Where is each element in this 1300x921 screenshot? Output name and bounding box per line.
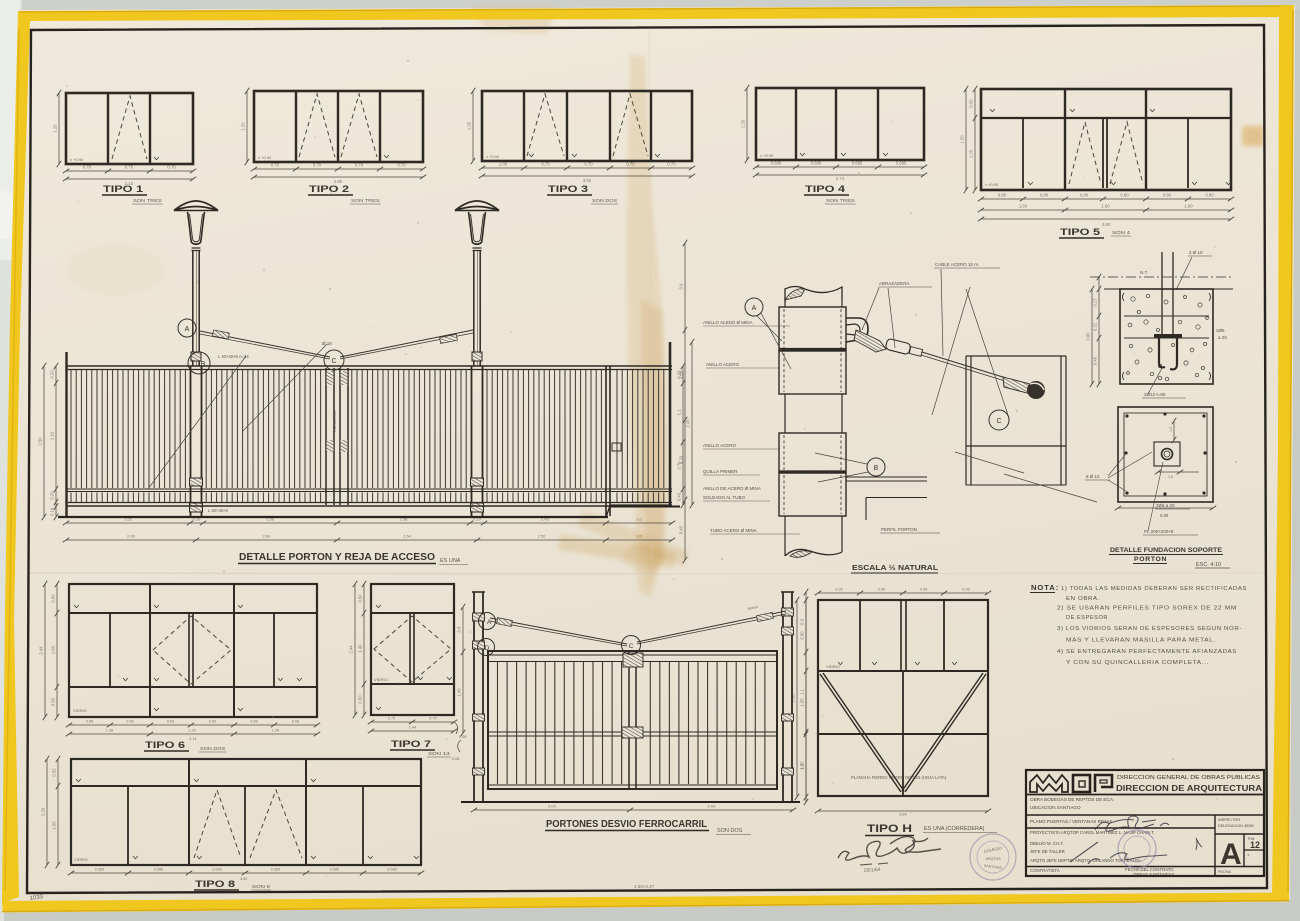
svg-text:A: A <box>752 305 757 312</box>
svg-text:2.60: 2.60 <box>127 534 136 539</box>
svg-text:0.20: 0.20 <box>50 491 55 500</box>
svg-text:C: C <box>629 643 634 650</box>
svg-text:0.70: 0.70 <box>679 455 684 464</box>
svg-text:0.69: 0.69 <box>209 720 216 724</box>
svg-text:N.T.: N.T. <box>1140 270 1148 275</box>
svg-text:0.80: 0.80 <box>1080 193 1089 198</box>
svg-text:a 20: a 20 <box>1218 335 1227 340</box>
svg-text:1.60: 1.60 <box>1184 204 1193 209</box>
svg-text:1.20: 1.20 <box>53 124 58 133</box>
svg-text:1.38: 1.38 <box>106 729 113 733</box>
svg-text:0.95: 0.95 <box>878 588 885 592</box>
svg-text:0.20: 0.20 <box>50 370 55 379</box>
svg-text:0.80: 0.80 <box>1120 193 1129 198</box>
svg-text:DETALLE FUNDACION SOPORTE: DETALLE FUNDACION SOPORTE <box>1110 547 1222 554</box>
svg-text:TIPO 6: TIPO 6 <box>145 740 185 751</box>
svg-text:0.80: 0.80 <box>1086 332 1091 341</box>
svg-text:ANILLO ACERO: ANILLO ACERO <box>703 443 737 448</box>
svg-text:SON DOS: SON DOS <box>717 828 743 834</box>
svg-text:0.55: 0.55 <box>52 768 57 777</box>
svg-text:TIPO 7: TIPO 7 <box>391 739 431 750</box>
svg-text:PORTON: PORTON <box>1134 556 1167 563</box>
svg-text:2.00: 2.00 <box>679 370 684 379</box>
svg-text:DELEGACION 45/58: DELEGACION 45/58 <box>1218 824 1253 828</box>
svg-text:VIDRIO: VIDRIO <box>374 677 388 682</box>
svg-text:0.69: 0.69 <box>167 720 174 724</box>
svg-text:20/1/64: 20/1/64 <box>864 867 881 874</box>
svg-text:1.38: 1.38 <box>272 729 279 733</box>
svg-text:JEFE DE TALLER: JEFE DE TALLER <box>1030 849 1065 854</box>
svg-text:1.20: 1.20 <box>741 119 746 128</box>
svg-text:PORTONES DESVIO FERROCARRIL: PORTONES DESVIO FERROCARRIL <box>546 819 707 830</box>
svg-text:TIPO 1: TIPO 1 <box>103 184 144 195</box>
svg-text:0.22: 0.22 <box>1093 322 1098 331</box>
svg-text:2.74: 2.74 <box>836 176 845 181</box>
svg-text:0.685: 0.685 <box>852 161 863 166</box>
svg-text:C: C <box>996 418 1001 425</box>
svg-text:2.58: 2.58 <box>266 517 275 522</box>
svg-text:SON TRES: SON TRES <box>351 198 380 204</box>
svg-text:0.30: 0.30 <box>969 99 974 108</box>
svg-text:0.70: 0.70 <box>541 162 550 167</box>
svg-text:2.04: 2.04 <box>548 804 557 809</box>
svg-text:2) SE USARAN PERFILES TIPO: 2) SE USARAN PERFILES TIPO SOREX DE 22 M… <box>1057 606 1237 612</box>
svg-text:2.64: 2.64 <box>403 534 412 539</box>
svg-text:L 40×40×6: L 40×40×6 <box>208 508 229 513</box>
svg-text:3.80: 3.80 <box>899 812 908 817</box>
svg-text:2.44: 2.44 <box>39 646 44 655</box>
svg-text:2Ø12 ℓ=90: 2Ø12 ℓ=90 <box>1144 392 1166 397</box>
svg-text:A: A <box>1220 838 1242 871</box>
svg-text:CONTRATISTA: CONTRATISTA <box>1030 868 1060 873</box>
svg-text:0.70: 0.70 <box>429 717 436 721</box>
svg-text:1.10: 1.10 <box>50 431 55 440</box>
svg-text:1.0: 1.0 <box>636 517 642 522</box>
svg-text:0.70: 0.70 <box>388 717 395 721</box>
svg-text:D: D <box>485 645 490 652</box>
svg-text:v +0.90: v +0.90 <box>985 182 999 187</box>
svg-text:0.70: 0.70 <box>667 162 676 167</box>
svg-text:0.70: 0.70 <box>397 163 406 168</box>
svg-text:TIPO 3: TIPO 3 <box>548 184 588 195</box>
svg-text:3.50: 3.50 <box>791 694 796 703</box>
svg-text:1.60: 1.60 <box>1101 204 1110 209</box>
svg-text:v +0.90: v +0.90 <box>760 153 774 158</box>
svg-text:DETALLE PORTON Y REJA DE ACCES: DETALLE PORTON Y REJA DE ACCESO <box>239 552 435 563</box>
svg-text:B: B <box>874 465 879 472</box>
svg-text:1.05: 1.05 <box>499 162 508 167</box>
svg-text:ANILLO ACERO: ANILLO ACERO <box>706 362 740 367</box>
svg-text:1.1: 1.1 <box>800 688 805 694</box>
svg-text:PLANO PUERTAS / VENTANAS REJ: PLANO PUERTAS / VENTANAS REJAS <box>1030 819 1112 824</box>
svg-text:0.08: 0.08 <box>452 757 459 761</box>
svg-text:0.68: 0.68 <box>292 720 299 724</box>
svg-text:3.50: 3.50 <box>240 877 247 881</box>
svg-text:0.585: 0.585 <box>95 868 105 872</box>
svg-text:SON DOS: SON DOS <box>592 198 617 204</box>
svg-text:0.50: 0.50 <box>51 697 56 706</box>
svg-text:ES UNA: ES UNA <box>440 558 461 564</box>
svg-text:3) LOS VIDRIOS SERAN DE ESPE: 3) LOS VIDRIOS SERAN DE ESPESORES SEGUN … <box>1057 626 1242 632</box>
svg-text:0.95: 0.95 <box>962 588 969 592</box>
svg-text:ABRAZADERA: ABRAZADERA <box>879 281 910 286</box>
svg-text:ES UNA (CORREDERA): ES UNA (CORREDERA) <box>924 826 985 832</box>
svg-text:0.70: 0.70 <box>584 162 593 167</box>
svg-text:2.58: 2.58 <box>400 517 409 522</box>
svg-text:B: B <box>201 361 206 368</box>
svg-text:1.0: 1.0 <box>1169 427 1173 432</box>
svg-text:0.60: 0.60 <box>358 594 363 603</box>
svg-text:Ø 18: Ø 18 <box>322 341 332 346</box>
svg-text:2.45: 2.45 <box>541 517 550 522</box>
svg-text:1.0: 1.0 <box>1168 475 1173 479</box>
svg-text:PLANCHA FIERRO NEGRO DE 3/16 (: PLANCHA FIERRO NEGRO DE 3/16 (HOJA LATA) <box>851 775 947 780</box>
svg-text:1.44: 1.44 <box>409 726 416 730</box>
svg-text:0.70: 0.70 <box>626 162 635 167</box>
svg-text:12: 12 <box>1250 840 1260 850</box>
svg-text:0.80: 0.80 <box>1160 513 1169 518</box>
svg-text:MAS Y LLEVARAN MASILLA PAR: MAS Y LLEVARAN MASILLA PARA METAL. <box>1066 638 1216 644</box>
svg-text:TIPO 4: TIPO 4 <box>805 184 846 195</box>
svg-text:0.685: 0.685 <box>896 161 907 166</box>
svg-text:8 Ø 10: 8 Ø 10 <box>1086 474 1100 479</box>
svg-text:A: A <box>487 619 492 626</box>
svg-text:0.80: 0.80 <box>998 193 1007 198</box>
svg-text:VIDRIO: VIDRIO <box>73 708 87 713</box>
svg-text:2.44: 2.44 <box>349 645 354 654</box>
svg-text:1.60: 1.60 <box>1019 204 1028 209</box>
svg-text:2.45: 2.45 <box>686 419 691 428</box>
svg-text:0.685: 0.685 <box>811 161 822 166</box>
svg-text:2.50: 2.50 <box>538 534 547 539</box>
svg-text:0.50: 0.50 <box>358 695 363 704</box>
svg-text:1.65: 1.65 <box>52 821 57 830</box>
svg-text:1.39: 1.39 <box>188 729 195 733</box>
svg-text:1.50: 1.50 <box>960 135 965 144</box>
svg-text:0.585: 0.585 <box>271 868 281 872</box>
svg-text:ARQTO JEFE DEPTO. ARQTO. ORL: ARQTO JEFE DEPTO. ARQTO. ORLANDO TORREAL… <box>1030 858 1141 863</box>
svg-text:1.45: 1.45 <box>457 688 462 697</box>
svg-text:2 Ø 10: 2 Ø 10 <box>1189 250 1203 255</box>
svg-text:DIBUJO M. CH.T.: DIBUJO M. CH.T. <box>1030 841 1064 846</box>
svg-text:0.40: 0.40 <box>677 492 682 501</box>
svg-text:4) SE ENTREGARAN PERFECTAME: 4) SE ENTREGARAN PERFECTAMENTE AFIANZADA… <box>1057 649 1237 655</box>
svg-text:0.80: 0.80 <box>1163 193 1172 198</box>
svg-text:0.68: 0.68 <box>86 720 93 724</box>
svg-text:ARQTOS: ARQTOS <box>985 857 1001 861</box>
svg-text:TIPO H: TIPO H <box>867 823 912 835</box>
svg-text:2.55: 2.55 <box>124 517 133 522</box>
svg-text:SON 6: SON 6 <box>252 884 270 890</box>
svg-text:SOLDADO AL TUBO: SOLDADO AL TUBO <box>703 495 746 500</box>
svg-text:1.0: 1.0 <box>636 534 642 539</box>
svg-text:1.20: 1.20 <box>969 149 974 158</box>
svg-text:0.95: 0.95 <box>920 588 927 592</box>
svg-text:DIRECCION GENERAL DE OBRAS PUB: DIRECCION GENERAL DE OBRAS PUBLICAS <box>1117 775 1261 781</box>
svg-text:0.70: 0.70 <box>83 165 92 170</box>
svg-text:0.68: 0.68 <box>126 720 133 724</box>
svg-text:4 BISAGRAS: 4 BISAGRAS <box>333 410 337 432</box>
svg-text:SON 13: SON 13 <box>428 751 450 757</box>
svg-text:0.08: 0.08 <box>459 735 466 739</box>
svg-text:OBRA BODEGAS DE REPTOS DE: OBRA BODEGAS DE REPTOS DE ECA. <box>1030 797 1114 802</box>
svg-text:ANILLO DE ACERO Ø MINA: ANILLO DE ACERO Ø MINA <box>703 486 761 491</box>
svg-text:3.05: 3.05 <box>583 178 592 183</box>
svg-text:EN OBRA.: EN OBRA. <box>1066 596 1100 602</box>
svg-text:2Ø6 a 20: 2Ø6 a 20 <box>1156 503 1175 508</box>
svg-text:0.585: 0.585 <box>212 868 222 872</box>
svg-text:TIPO 5: TIPO 5 <box>1060 227 1101 238</box>
svg-text:0.80: 0.80 <box>800 631 805 640</box>
svg-text:1.20: 1.20 <box>467 121 472 130</box>
svg-text:TIPO 2: TIPO 2 <box>309 184 349 195</box>
svg-text:A: A <box>185 326 190 333</box>
svg-text:ESC. 4:10: ESC. 4:10 <box>1196 562 1221 568</box>
svg-text:0.70: 0.70 <box>271 163 280 168</box>
svg-text:VIDRIO: VIDRIO <box>826 664 840 669</box>
svg-text:0.80: 0.80 <box>1205 193 1214 198</box>
svg-text:2.64: 2.64 <box>263 534 272 539</box>
svg-text:SON DOS: SON DOS <box>200 746 225 752</box>
svg-text:NOTA:: NOTA: <box>1031 583 1059 592</box>
svg-text:QUILLA PRIMER: QUILLA PRIMER <box>703 469 738 474</box>
svg-text:2Ø6: 2Ø6 <box>1216 328 1225 333</box>
svg-text:0.27: 0.27 <box>1093 298 1098 307</box>
svg-text:PERFIL PORTON: PERFIL PORTON <box>881 527 917 532</box>
svg-text:C: C <box>331 358 336 365</box>
svg-text:0.70: 0.70 <box>355 163 364 168</box>
svg-text:0.70: 0.70 <box>125 165 134 170</box>
svg-text:OBRAS SANITARIAS: OBRAS SANITARIAS <box>1133 872 1175 877</box>
svg-text:PROYECTISTA ARQTOP CAROL MA: PROYECTISTA ARQTOP CAROL MARTINEZ L. NAJ… <box>1030 830 1155 835</box>
svg-text:0.9: 0.9 <box>679 283 684 289</box>
svg-text:SON 4: SON 4 <box>1112 230 1130 236</box>
svg-text:DE ESPESOR: DE ESPESOR <box>1066 615 1108 621</box>
svg-text:0.40: 0.40 <box>679 525 684 534</box>
svg-text:0.60: 0.60 <box>51 594 56 603</box>
svg-text:1.: 1. <box>1247 853 1250 857</box>
svg-text:1.40: 1.40 <box>358 644 363 653</box>
svg-text:VIDRIO: VIDRIO <box>74 857 88 862</box>
svg-text:0.80: 0.80 <box>1040 193 1049 198</box>
svg-text:0.95: 0.95 <box>835 588 842 592</box>
svg-text:v +0.90: v +0.90 <box>258 155 272 160</box>
svg-text:1.1: 1.1 <box>677 409 682 415</box>
svg-text:0.70: 0.70 <box>167 165 176 170</box>
svg-text:4.80: 4.80 <box>1102 222 1111 227</box>
svg-text:2.20: 2.20 <box>41 807 46 816</box>
svg-text:0.10: 0.10 <box>473 517 482 522</box>
svg-text:2.04: 2.04 <box>708 804 717 809</box>
svg-text:0.10: 0.10 <box>50 507 55 516</box>
svg-text:0.685: 0.685 <box>771 161 782 166</box>
svg-text:SON TRES: SON TRES <box>133 198 162 204</box>
svg-text:0.10: 0.10 <box>193 517 202 522</box>
svg-text:1) TODAS LAS MEDIDAS DEBERAN: 1) TODAS LAS MEDIDAS DEBERAN SER RECTIFI… <box>1061 586 1247 592</box>
svg-text:SON TRES: SON TRES <box>826 198 855 204</box>
svg-text:0.68: 0.68 <box>250 720 257 724</box>
svg-text:4.33×4.47: 4.33×4.47 <box>634 884 655 889</box>
svg-text:v +0.90: v +0.90 <box>70 157 84 162</box>
svg-text:Y CON SU QUINCALLERIA COMP: Y CON SU QUINCALLERIA COMPLETA... <box>1066 660 1209 666</box>
svg-text:0.46: 0.46 <box>1093 356 1098 365</box>
svg-text:1.60: 1.60 <box>51 645 56 654</box>
svg-text:L 40×40×6 A=34: L 40×40×6 A=34 <box>218 354 249 359</box>
svg-text:1.35: 1.35 <box>800 761 805 770</box>
svg-text:DIRECCION DE ARQUITECTURA: DIRECCION DE ARQUITECTURA <box>1116 783 1262 793</box>
svg-text:0.9: 0.9 <box>800 618 805 624</box>
svg-text:TUBO ACERO Ø MINA: TUBO ACERO Ø MINA <box>710 528 757 533</box>
svg-text:TIPO 8: TIPO 8 <box>195 879 235 890</box>
svg-text:INSPECTOR: INSPECTOR <box>1218 818 1240 822</box>
svg-text:UBICACION SANTIAGO: UBICACION SANTIAGO <box>1030 805 1081 810</box>
svg-text:CABLE ACERO 10 m.: CABLE ACERO 10 m. <box>935 262 979 267</box>
svg-text:0.585: 0.585 <box>330 868 340 872</box>
svg-text:1.35: 1.35 <box>800 698 805 707</box>
svg-text:1.20: 1.20 <box>241 122 246 131</box>
svg-text:ANILLO ALEDO Ø MINA: ANILLO ALEDO Ø MINA <box>703 320 753 325</box>
svg-text:0.585: 0.585 <box>154 868 164 872</box>
svg-text:4.11: 4.11 <box>189 736 197 741</box>
svg-text:ESCALA ½ NATURAL: ESCALA ½ NATURAL <box>852 564 939 572</box>
svg-text:2.50: 2.50 <box>38 437 43 446</box>
svg-text:0.70: 0.70 <box>313 163 322 168</box>
svg-text:0.9: 0.9 <box>457 626 462 632</box>
svg-text:0.585: 0.585 <box>387 868 397 872</box>
svg-text:v +0.90: v +0.90 <box>486 154 500 159</box>
